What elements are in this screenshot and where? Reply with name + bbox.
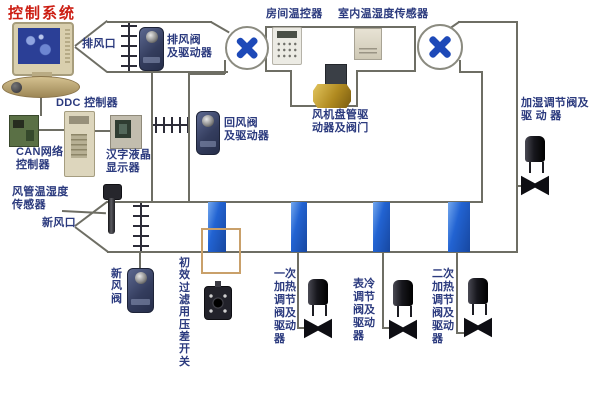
coil-bar (291, 202, 307, 252)
plenum-outline (188, 73, 225, 75)
label-filter-pressure-switch: 初效过滤用压差开关 (179, 257, 192, 368)
valve-actuator-icon (464, 278, 492, 342)
damper-symbol (133, 203, 149, 251)
fan-icon (225, 26, 269, 70)
coil-bar (373, 202, 390, 252)
fresh-air-funnel-line (74, 226, 108, 252)
duct-line (211, 21, 230, 33)
supply-riser-line (516, 21, 518, 253)
page-title: 控制系统 (8, 5, 76, 23)
coil-bar (448, 202, 470, 252)
duct-line (459, 71, 483, 73)
label-primary-heating-valve: 一次加热调节阀及驱动器 (274, 268, 297, 346)
valve-actuator-icon (389, 280, 417, 344)
wire (37, 129, 65, 131)
label-cooling-coil-valve: 表冷调节阀及驱动器 (353, 278, 376, 343)
room-outline (414, 26, 416, 72)
plenum-outline (481, 71, 483, 203)
plenum-outline (224, 60, 226, 74)
label-fresh-air-damper: 新风阀 (111, 268, 124, 305)
label-exhaust-outlet: 排风口 (82, 38, 116, 51)
indoor-sensor-icon (354, 28, 382, 60)
room-outline (356, 70, 415, 72)
pressure-switch-icon (204, 286, 232, 320)
can-network-board-icon (9, 115, 39, 147)
lcd-display-icon (110, 115, 142, 149)
fan-icon (417, 24, 463, 70)
room-outline (265, 70, 292, 72)
label-return-damper: 回风阀 及驱动器 (224, 117, 269, 144)
computer-base-icon (2, 76, 80, 98)
label-room-thermostat: 房间温控器 (266, 8, 323, 21)
callout-line (62, 210, 106, 214)
filter-frame (201, 228, 241, 274)
label-lcd-display: 汉字液晶 显示器 (106, 149, 151, 176)
label-exhaust-damper: 排风阀 及驱动器 (167, 34, 212, 61)
fan-coil-pocket (356, 70, 358, 107)
label-ddc-controller: DDC 控制器 (56, 97, 118, 110)
hvac-control-system-diagram: 控制系统 (0, 0, 600, 400)
fan-coil-pocket (290, 70, 292, 107)
return-damper-actuator-icon (196, 111, 220, 155)
plenum-outline (188, 73, 190, 203)
crt-monitor-icon (12, 22, 74, 76)
humidifier-valve-actuator-icon (521, 136, 549, 200)
exhaust-damper-actuator-icon (139, 27, 164, 71)
duct-line (458, 21, 518, 23)
wire (382, 251, 384, 329)
damper-symbol (121, 23, 137, 71)
valve-actuator-icon (304, 279, 332, 343)
wire (297, 251, 299, 329)
duct-probe-icon (108, 198, 115, 234)
room-thermostat-icon (272, 27, 302, 65)
label-duct-sensor: 风管温湿度 传感器 (12, 186, 69, 213)
label-indoor-sensor: 室内温湿度传感器 (338, 8, 428, 21)
label-fan-coil-valve: 风机盘管驱 动器及阀门 (312, 109, 369, 136)
return-riser-line (151, 68, 153, 202)
fresh-damper-actuator-icon (127, 268, 154, 313)
label-fresh-air-inlet: 新风口 (42, 217, 76, 230)
ddc-controller-icon (64, 111, 95, 177)
fan-coil-brass-valve-icon (313, 84, 351, 108)
damper-symbol (153, 117, 188, 133)
label-secondary-heating-valve: 二次加热调节阀及驱动器 (432, 268, 455, 346)
wire (456, 251, 458, 334)
label-can-controller: CAN网络 控制器 (16, 146, 63, 173)
label-humidifier-valve: 加湿调节阀及 驱 动 器 (521, 97, 589, 124)
